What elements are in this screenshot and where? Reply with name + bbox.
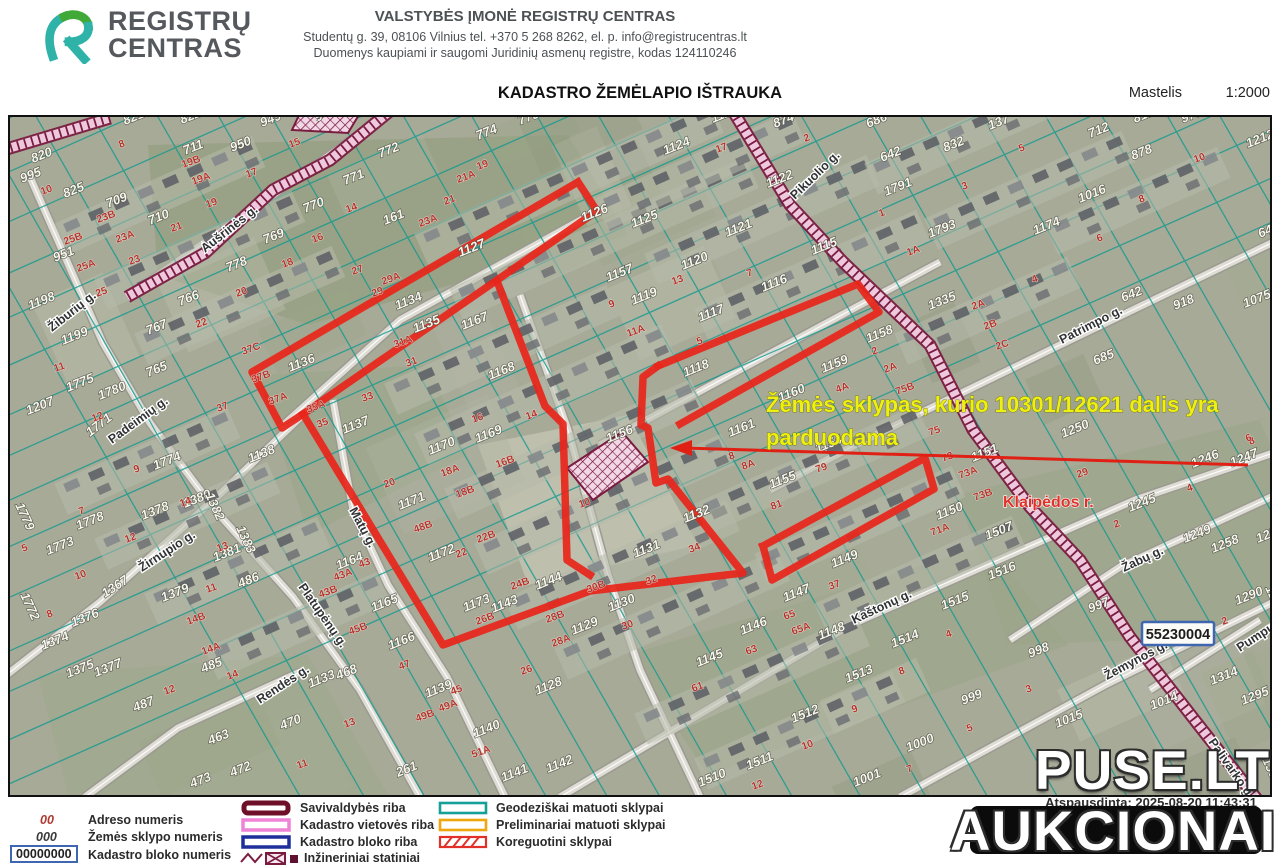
logo-line2: CENTRAS	[108, 35, 252, 62]
engineering-structures-icon	[239, 850, 299, 866]
header: REGISTRŲ CENTRAS VALSTYBĖS ĮMONĖ REGISTR…	[0, 0, 1280, 78]
scale-label: Mastelis	[1129, 85, 1182, 101]
scale-value: 1:2000	[1226, 85, 1270, 101]
cadastral-map-extract-page: REGISTRŲ CENTRAS VALSTYBĖS ĮMONĖ REGISTR…	[0, 0, 1280, 868]
registru-centras-logo: REGISTRŲ CENTRAS	[38, 6, 252, 64]
title-bar: KADASTRO ŽEMĖLAPIO IŠTRAUKA Mastelis 1:2…	[8, 84, 1272, 110]
preliminarily-measured-label: Preliminariai matuoti sklypai	[496, 818, 666, 832]
logo-wordmark: REGISTRŲ CENTRAS	[108, 8, 252, 62]
cadastre-block-boundary-icon	[241, 834, 291, 850]
watermark-aukcionai: AUKCIONAI	[950, 798, 1270, 863]
organization-block: VALSTYBĖS ĮMONĖ REGISTRŲ CENTRAS Student…	[250, 8, 800, 61]
address-number-symbol: 00	[40, 813, 54, 827]
parcel-number-label: Žemės sklypo numeris	[88, 830, 223, 844]
logo-line1: REGISTRŲ	[108, 8, 252, 35]
cadastre-block-boundary-label: Kadastro bloko riba	[300, 835, 417, 849]
page-title: KADASTRO ŽEMĖLAPIO IŠTRAUKA	[8, 84, 1272, 103]
geodetically-measured-label: Geodeziškai matuoti sklypai	[496, 801, 663, 815]
cadastre-locality-boundary-icon	[241, 817, 291, 833]
organization-register: Duomenys kaupiami ir saugomi Juridinių a…	[250, 45, 800, 61]
municipality-boundary-icon	[241, 800, 291, 816]
parcel-number-symbol: 000	[36, 830, 57, 844]
organization-name: VALSTYBĖS ĮMONĖ REGISTRŲ CENTRAS	[250, 8, 800, 25]
to-be-corrected-icon	[438, 834, 488, 850]
organization-address: Studentų g. 39, 08106 Vilnius tel. +370 …	[250, 29, 800, 45]
geodetically-measured-icon	[438, 800, 488, 816]
watermark-puse-lt: PUSE.LT	[1030, 738, 1275, 802]
preliminarily-measured-icon	[438, 817, 488, 833]
block-number-symbol: 00000000	[10, 845, 78, 863]
municipality-boundary-label: Savivaldybės riba	[300, 801, 406, 815]
to-be-corrected-label: Koreguotini sklypai	[496, 835, 612, 849]
address-number-label: Adreso numeris	[88, 813, 183, 827]
engineering-structures-label: Inžineriniai statiniai	[304, 851, 420, 865]
cadastre-locality-boundary-label: Kadastro vietovės riba	[300, 818, 434, 832]
registru-centras-logo-icon	[38, 6, 102, 64]
block-number-label: Kadastro bloko numeris	[88, 848, 231, 862]
